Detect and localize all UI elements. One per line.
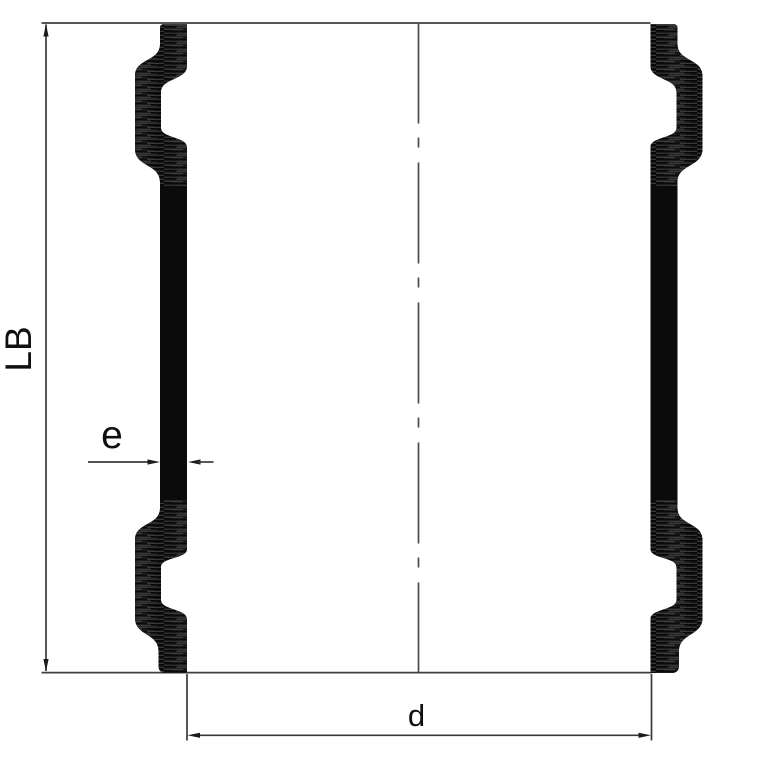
svg-text:e: e <box>101 414 123 457</box>
svg-text:d: d <box>408 698 425 733</box>
svg-text:LB: LB <box>0 326 39 371</box>
